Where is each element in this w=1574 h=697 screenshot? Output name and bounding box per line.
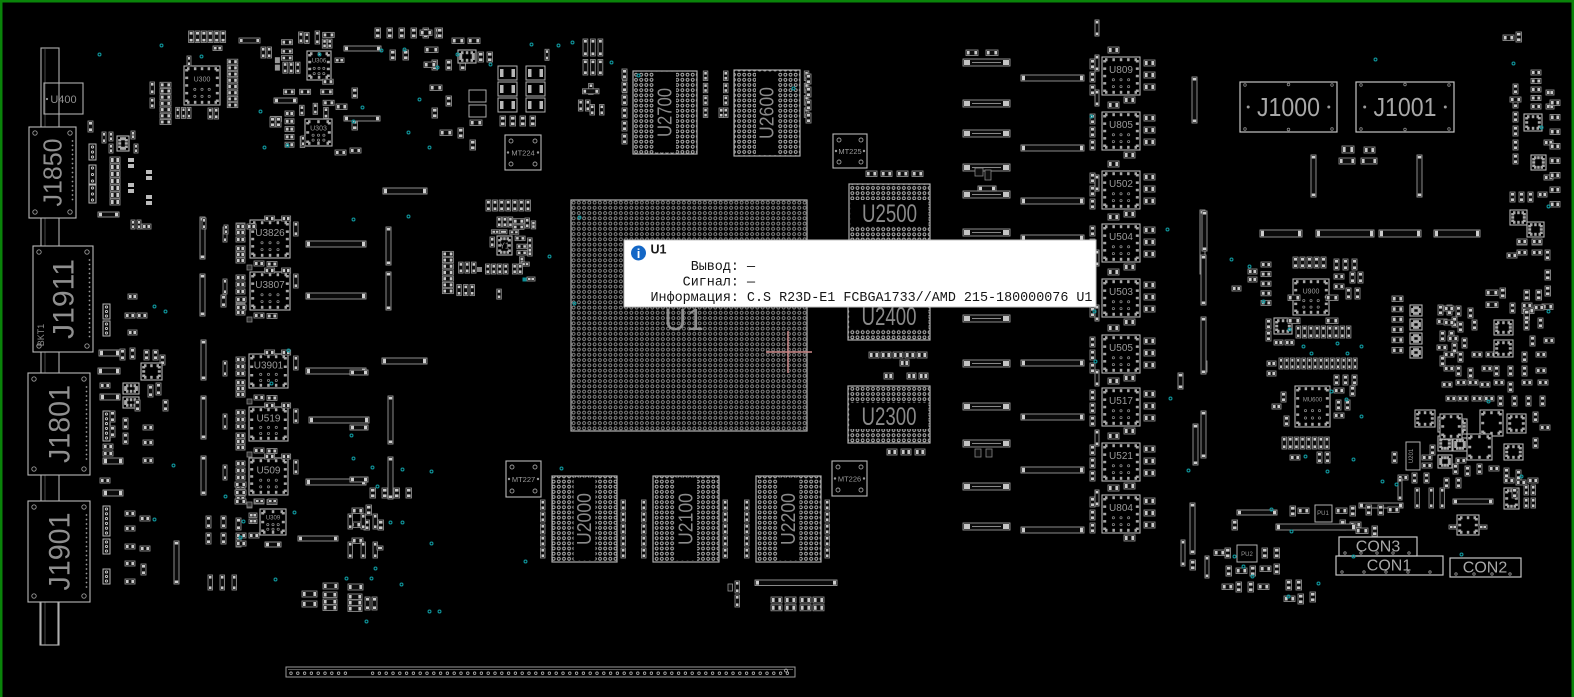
svg-text:U503: U503 (1109, 287, 1133, 298)
svg-text:MU600: MU600 (1303, 398, 1323, 404)
svg-text:U805: U805 (1109, 120, 1133, 131)
svg-text:J1850: J1850 (38, 139, 68, 207)
svg-text:MT226: MT226 (838, 475, 861, 484)
svg-text:U900: U900 (1303, 288, 1320, 295)
svg-text:U804: U804 (1109, 503, 1133, 514)
svg-text:U2300: U2300 (862, 403, 917, 431)
svg-text:MT227: MT227 (512, 475, 535, 484)
svg-text:U509: U509 (257, 466, 281, 477)
svg-text:J1901: J1901 (44, 513, 77, 591)
svg-text:U3901: U3901 (254, 361, 284, 372)
svg-text:U505: U505 (1109, 343, 1133, 354)
svg-text:U2100: U2100 (676, 493, 698, 545)
svg-text:BKT1: BKT1 (36, 324, 46, 347)
svg-text:MT225: MT225 (838, 147, 861, 156)
svg-text:Информация: C.S R23D-E1 FCBGA1: Информация: C.S R23D-E1 FCBGA1733//AMD 2… (651, 291, 1093, 306)
svg-text:U2200: U2200 (778, 493, 800, 545)
svg-text:i: i (637, 246, 641, 261)
svg-text:U306: U306 (312, 59, 327, 65)
svg-text:MT224: MT224 (511, 149, 534, 158)
svg-text:U2500: U2500 (862, 200, 917, 228)
svg-text:U809: U809 (1109, 65, 1133, 76)
svg-text:U400: U400 (50, 94, 76, 106)
svg-text:U3826: U3826 (255, 228, 285, 239)
svg-text:Сигнал: —: Сигнал: — (683, 276, 756, 291)
svg-text:U309: U309 (266, 516, 281, 522)
svg-text:U519: U519 (257, 414, 281, 425)
svg-text:U300: U300 (194, 76, 211, 83)
svg-text:CON1: CON1 (1367, 558, 1412, 575)
svg-text:Вывод: —: Вывод: — (691, 260, 756, 275)
svg-text:U1: U1 (651, 243, 667, 257)
svg-text:J1911: J1911 (48, 259, 81, 339)
svg-text:J1801: J1801 (44, 385, 77, 463)
svg-text:U2700: U2700 (655, 88, 677, 137)
svg-text:U2000: U2000 (574, 493, 596, 545)
svg-text:U3807: U3807 (255, 280, 285, 291)
svg-text:PU2: PU2 (1241, 552, 1253, 558)
svg-text:J1000: J1000 (1257, 92, 1320, 122)
svg-text:CON2: CON2 (1463, 560, 1508, 577)
svg-text:U517: U517 (1109, 396, 1133, 407)
svg-text:U521: U521 (1109, 451, 1133, 462)
svg-text:U502: U502 (1109, 179, 1133, 190)
svg-text:U504: U504 (1109, 232, 1133, 243)
svg-text:U2600: U2600 (757, 87, 779, 139)
svg-text:PU1: PU1 (1317, 511, 1329, 517)
svg-text:Y1: Y1 (500, 241, 510, 250)
svg-text:U201: U201 (1409, 448, 1415, 463)
svg-text:J1001: J1001 (1374, 92, 1437, 122)
svg-text:U303: U303 (310, 125, 327, 132)
